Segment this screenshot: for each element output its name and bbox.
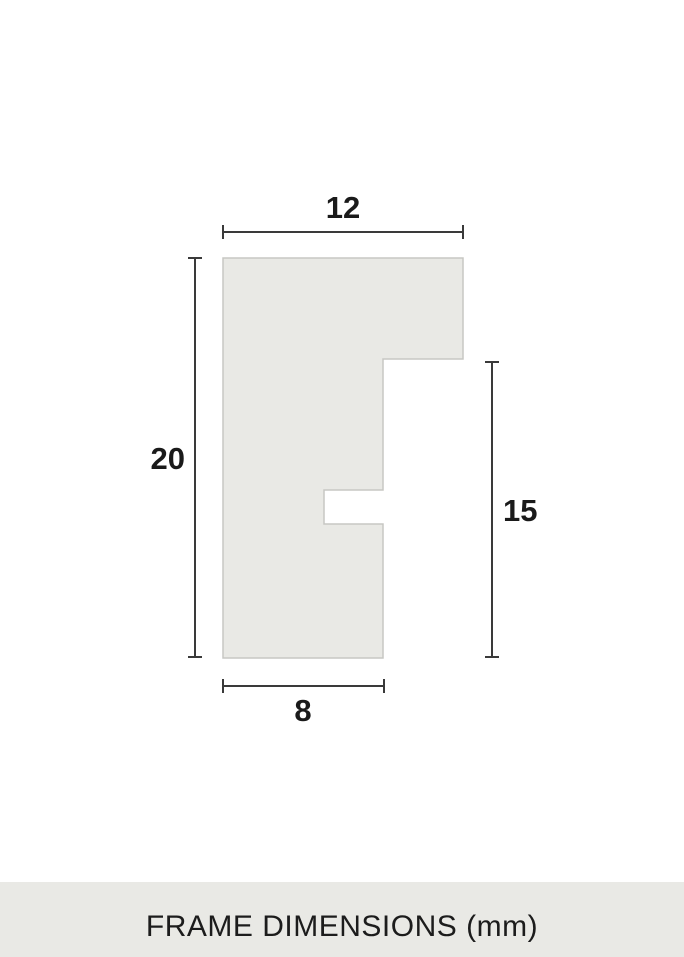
footer-title: FRAME DIMENSIONS (mm) xyxy=(146,896,538,944)
dimension-left-height: 20 xyxy=(151,258,202,657)
dimension-label-right: 15 xyxy=(503,493,537,528)
frame-dimensions-page: 12 20 15 8 xyxy=(0,0,684,957)
dimension-label-left: 20 xyxy=(151,441,185,476)
frame-profile-shape xyxy=(223,258,463,658)
dimension-label-top: 12 xyxy=(326,190,360,225)
dimension-right-height: 15 xyxy=(485,362,537,657)
dimension-bottom-width: 8 xyxy=(223,679,384,728)
dimension-label-bottom: 8 xyxy=(294,693,311,728)
profile-diagram: 12 20 15 8 xyxy=(0,0,684,882)
dimension-top-width: 12 xyxy=(223,190,463,239)
footer-band: FRAME DIMENSIONS (mm) xyxy=(0,882,684,957)
